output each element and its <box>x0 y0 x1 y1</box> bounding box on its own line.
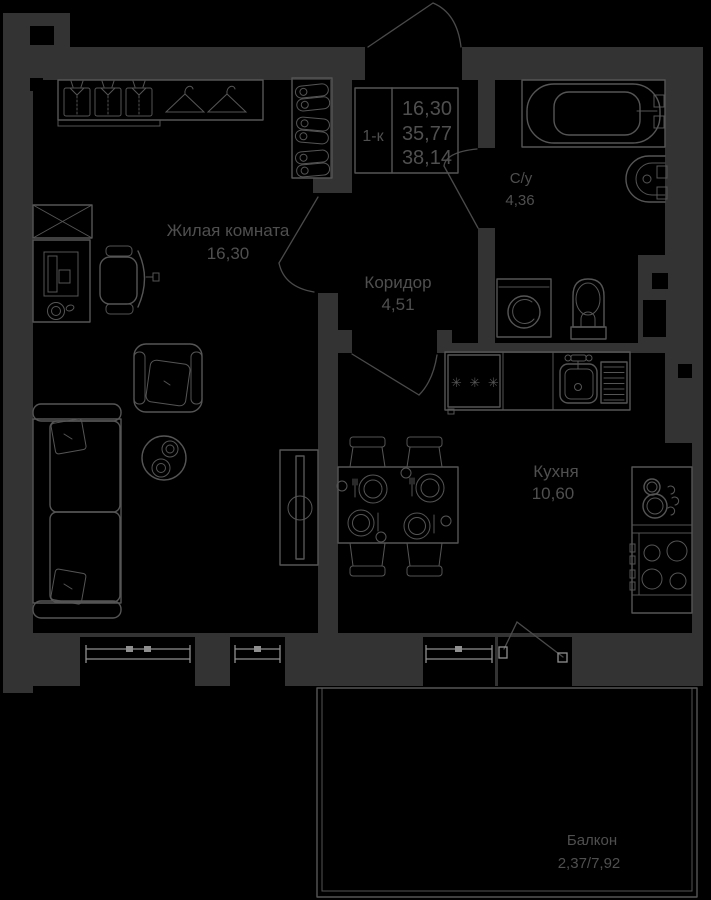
cup-icon <box>152 459 170 477</box>
cup-icon <box>162 441 178 457</box>
desk-chair <box>100 246 159 314</box>
dining-chair <box>350 437 385 467</box>
entrance-door <box>368 3 461 47</box>
floor-plan: Балкон 2,37/7,92 1-к 16,30 35,77 38,14 Ж… <box>0 0 711 900</box>
floor-plan-canvas: Балкон 2,37/7,92 1-к 16,30 35,77 38,14 Ж… <box>0 0 711 900</box>
area-total-value: 38,14 <box>402 147 452 169</box>
shoes-icon <box>295 83 330 111</box>
area-living-value: 16,30 <box>402 98 452 120</box>
desk <box>33 240 90 322</box>
bathroom-sink-icon <box>626 156 667 202</box>
area-apartment-value: 35,77 <box>402 123 452 145</box>
bathroom-area: 4,36 <box>505 192 534 209</box>
apartment-type-label: 1-к <box>362 128 384 145</box>
toilet-icon <box>571 279 606 339</box>
shirt-icon <box>126 81 152 116</box>
dining-chair <box>407 437 442 467</box>
walls <box>3 13 703 693</box>
kitchen-side-counter <box>630 467 692 613</box>
tv-stand <box>280 450 318 565</box>
monitor-icon <box>44 252 78 296</box>
drainer-icon <box>601 362 627 403</box>
shoes-icon <box>295 150 330 178</box>
dining-chair <box>407 543 442 576</box>
balcony-area: 2,37/7,92 <box>558 855 621 872</box>
kitchen-sink-icon <box>560 355 597 403</box>
shirt-icon <box>95 81 121 116</box>
stove-burners-icon: ✳ ✳ ✳ <box>448 355 501 414</box>
armchair <box>134 344 202 412</box>
living-room-area: 16,30 <box>207 244 250 263</box>
plate-icon <box>337 475 387 503</box>
washer-icon <box>497 279 551 337</box>
bathroom-label: С/у <box>510 170 533 187</box>
corridor-area: 4,51 <box>381 295 414 314</box>
coffee-table <box>142 436 186 480</box>
pots-icon <box>643 479 679 518</box>
kitchen-counter: ✳ ✳ ✳ <box>445 352 630 414</box>
svg-text:✳ ✳ ✳: ✳ ✳ ✳ <box>451 375 501 390</box>
plate-icon <box>348 510 386 542</box>
shoes-icon <box>295 117 330 145</box>
balcony-label: Балкон <box>567 832 617 849</box>
mug-icon <box>48 303 75 320</box>
dining-table <box>337 437 458 576</box>
tv-icon <box>288 456 312 559</box>
corridor-label: Коридор <box>364 273 431 292</box>
wardrobe <box>58 80 263 126</box>
shoe-rack <box>292 78 332 178</box>
kitchen-area: 10,60 <box>532 484 575 503</box>
hanger-icon <box>208 86 246 112</box>
plate-icon <box>401 468 444 502</box>
title-block: 1-к 16,30 35,77 38,14 <box>355 88 458 173</box>
shirt-icon <box>64 81 90 116</box>
pillow-icon <box>51 418 87 454</box>
pillow-icon <box>50 569 86 605</box>
kitchen-door <box>352 354 437 395</box>
hanger-icon <box>166 86 204 112</box>
sofa <box>33 404 121 618</box>
kitchen-label: Кухня <box>533 462 579 481</box>
crossed-cabinet <box>33 205 92 238</box>
dining-chair <box>350 543 385 576</box>
plate-icon <box>404 513 451 539</box>
balcony: Балкон 2,37/7,92 <box>317 688 697 897</box>
living-room-door <box>279 197 318 292</box>
living-room-label: Жилая комната <box>167 221 290 240</box>
bathtub-icon <box>522 80 665 147</box>
